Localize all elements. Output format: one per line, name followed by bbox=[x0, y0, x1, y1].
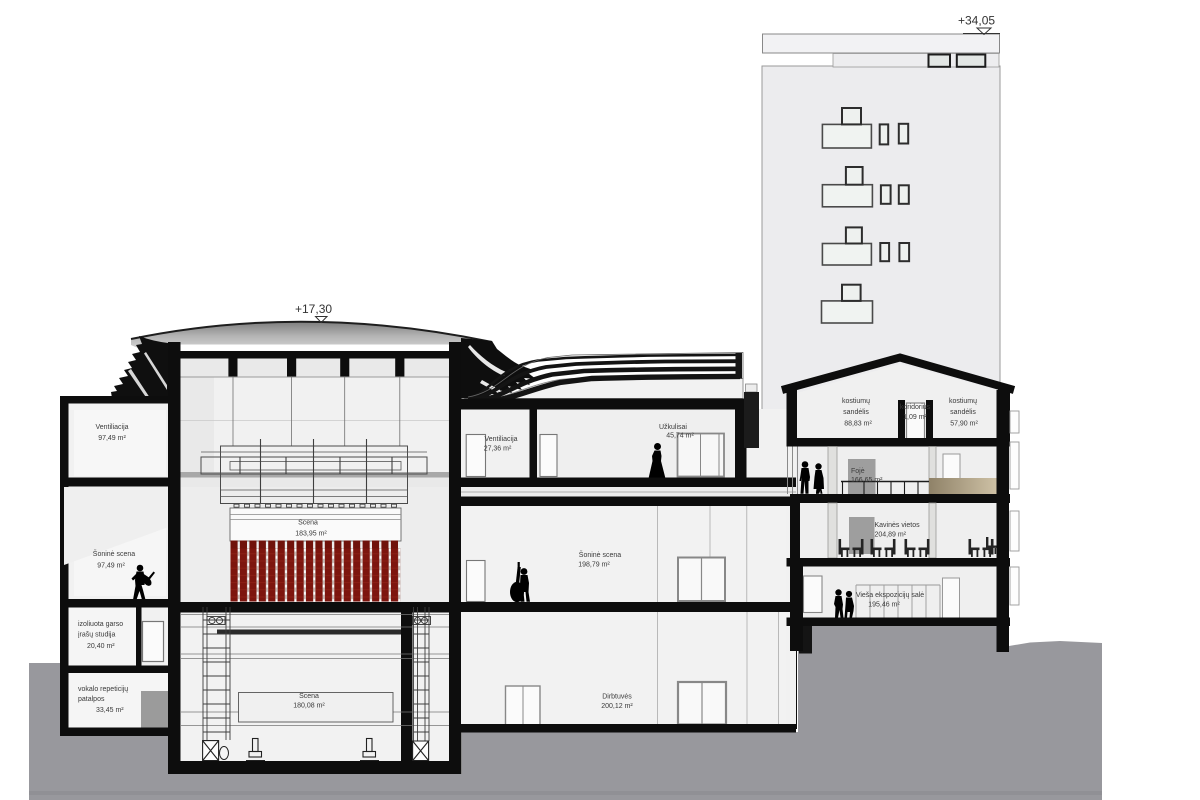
svg-text:Scena: Scena bbox=[299, 693, 319, 700]
svg-text:koridorius: koridorius bbox=[900, 404, 931, 411]
svg-text:198,79 m²: 198,79 m² bbox=[578, 562, 610, 569]
svg-text:sandėlis: sandėlis bbox=[950, 409, 976, 416]
svg-text:kostiumų: kostiumų bbox=[949, 398, 977, 405]
svg-text:180,08 m²: 180,08 m² bbox=[293, 703, 325, 710]
svg-text:Užkulisai: Užkulisai bbox=[659, 424, 687, 431]
svg-text:Dirbtuvės: Dirbtuvės bbox=[602, 694, 632, 701]
svg-text:Šoninė scena: Šoninė scena bbox=[579, 550, 622, 559]
svg-text:Ventiliacija: Ventiliacija bbox=[95, 424, 128, 431]
svg-text:195,46 m²: 195,46 m² bbox=[868, 602, 900, 609]
svg-text:27,36 m²: 27,36 m² bbox=[484, 446, 512, 453]
svg-text:Scena: Scena bbox=[298, 520, 318, 527]
svg-text:57,90 m²: 57,90 m² bbox=[950, 421, 978, 428]
svg-text:1,09 m²: 1,09 m² bbox=[903, 414, 927, 421]
svg-text:20,40 m²: 20,40 m² bbox=[87, 643, 115, 650]
svg-text:Šoninė scena: Šoninė scena bbox=[93, 549, 136, 558]
svg-text:97,49 m²: 97,49 m² bbox=[98, 435, 126, 442]
svg-text:patalpos: patalpos bbox=[78, 696, 105, 703]
svg-text:183,95 m²: 183,95 m² bbox=[295, 531, 327, 538]
svg-text:200,12 m²: 200,12 m² bbox=[601, 703, 633, 710]
svg-text:33,45 m²: 33,45 m² bbox=[96, 707, 124, 714]
svg-text:vokalo repeticijų: vokalo repeticijų bbox=[78, 686, 128, 693]
svg-text:45,74 m²: 45,74 m² bbox=[666, 433, 694, 440]
svg-text:88,83 m²: 88,83 m² bbox=[844, 421, 872, 428]
svg-text:Vieša ekspozicijų salė: Vieša ekspozicijų salė bbox=[856, 592, 924, 599]
svg-text:+34,05: +34,05 bbox=[958, 14, 995, 28]
svg-text:sandėlis: sandėlis bbox=[843, 409, 869, 416]
svg-text:įrašų studija: įrašų studija bbox=[78, 632, 115, 639]
svg-text:97,49 m²: 97,49 m² bbox=[97, 563, 125, 570]
svg-text:izoliuota garso: izoliuota garso bbox=[78, 621, 123, 628]
svg-text:Fojė: Fojė bbox=[851, 468, 865, 475]
svg-text:kostiumų: kostiumų bbox=[842, 398, 870, 405]
svg-text:Kavinės vietos: Kavinės vietos bbox=[875, 522, 921, 529]
svg-text:+17,30: +17,30 bbox=[295, 302, 332, 316]
svg-text:Ventiliacija: Ventiliacija bbox=[484, 436, 517, 443]
svg-text:166,65 m²: 166,65 m² bbox=[851, 477, 883, 484]
svg-text:204,89 m²: 204,89 m² bbox=[875, 532, 907, 539]
